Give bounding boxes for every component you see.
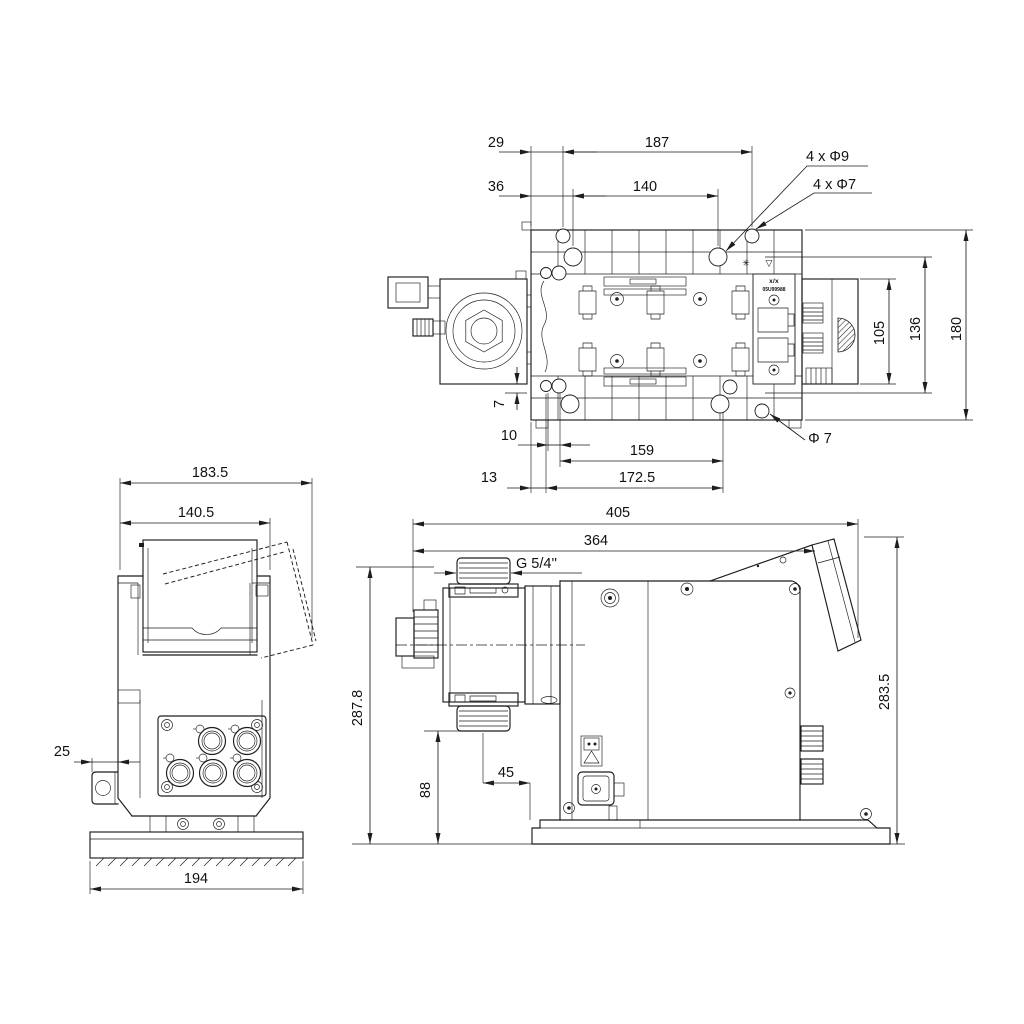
drawing-background	[0, 0, 1024, 1024]
plate-label-line2: 05U99988	[762, 287, 785, 293]
dim-label-13: 13	[481, 470, 497, 486]
gear-icon: ✳	[742, 258, 750, 268]
dim-label-172-5: 172.5	[619, 470, 655, 486]
dim-label-29: 29	[488, 135, 504, 151]
dim-label-10: 10	[501, 428, 517, 444]
dim-label-45: 45	[498, 765, 514, 781]
dim-label-180: 180	[949, 317, 965, 341]
dim-label-140-5: 140.5	[178, 505, 214, 521]
warning-triangle-icon: ▽	[766, 258, 773, 268]
plate-label-box: x/x 05U99988	[753, 274, 795, 384]
dim-label-187: 187	[645, 135, 669, 151]
dim-label-287-8: 287.8	[350, 690, 366, 726]
dim-label-105: 105	[872, 321, 888, 345]
dim-label-405: 405	[606, 505, 630, 521]
dim-label-364: 364	[584, 533, 608, 549]
dimensional-drawing-page: x/x 05U99988 ✳ ▽	[0, 0, 1024, 1024]
callout-d7: Φ 7	[808, 431, 832, 447]
dim-label-159: 159	[630, 443, 654, 459]
dim-label-136: 136	[908, 317, 924, 341]
dim-label-283-5: 283.5	[877, 674, 893, 710]
dim-label-25: 25	[54, 744, 70, 760]
pump-dimensional-drawing: x/x 05U99988 ✳ ▽	[0, 0, 1024, 1024]
dim-label-36: 36	[488, 179, 504, 195]
thread-size-label: G 5/4''	[516, 556, 557, 572]
dim-label-88: 88	[418, 782, 434, 798]
dim-label-140: 140	[633, 179, 657, 195]
callout-4xd9: 4 x Φ9	[806, 149, 849, 165]
dim-label-194: 194	[184, 871, 208, 887]
callout-4xd7: 4 x Φ7	[813, 177, 856, 193]
dim-label-183-5: 183.5	[192, 465, 228, 481]
dim-label-7: 7	[492, 400, 508, 408]
plate-label-line1: x/x	[769, 278, 779, 285]
